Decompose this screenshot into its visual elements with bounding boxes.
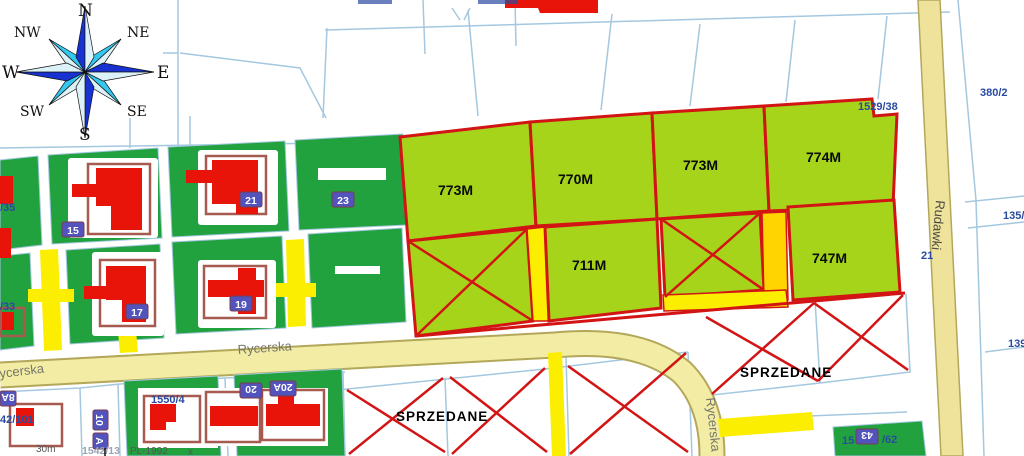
plate-23: 23 [337, 195, 349, 207]
x-mark: x [188, 447, 193, 456]
scale-label: 30m [36, 444, 55, 455]
compass-n: N [78, 1, 93, 21]
plot-green [308, 228, 406, 328]
compass-sw: SW [20, 104, 45, 120]
compass-nw: NW [14, 25, 41, 41]
sold-label-right: SPRZEDANE [740, 365, 832, 380]
parcel-35: /35 [0, 202, 15, 214]
plate-10a: A [93, 437, 105, 445]
map-canvas: N NE E SE S SW W NW 15 21 23 17 19 8A 10… [0, 0, 1024, 456]
plate-17: 17 [131, 307, 143, 319]
cadastral-map: N NE E SE S SW W NW 15 21 23 17 19 8A 10… [0, 0, 1024, 456]
parcel-33: /33 [0, 301, 15, 313]
parcel-1550-4: 1550/4 [151, 394, 186, 406]
parcel-139: 139 [1008, 338, 1024, 350]
plot-area-label: 773M [438, 182, 473, 198]
plate-15: 15 [67, 225, 79, 237]
plate-10: 10 [93, 414, 105, 426]
compass-w: W [2, 63, 20, 83]
plot-area-label: 770M [558, 171, 593, 187]
plate-19: 19 [235, 299, 247, 311]
clipped-label-fragment [478, 0, 518, 4]
sold-label-left: SPRZEDANE [396, 409, 488, 424]
plot-area-label: 711M [572, 257, 606, 273]
compass-s: S [79, 125, 91, 145]
plate-43: 43 [861, 429, 873, 441]
crs-label: PL-1992 [130, 446, 168, 456]
parcel-21: 21 [921, 250, 933, 262]
plot-area-label: 773M [683, 157, 718, 173]
compass-ne: NE [127, 25, 149, 41]
plate-20a: 20A [273, 381, 293, 393]
compass-se: SE [127, 104, 147, 120]
compass-e: E [157, 63, 169, 83]
parcel-43-suffix: /62 [882, 434, 897, 446]
plot-770m [530, 113, 657, 226]
parcel-135: 135/ [1003, 210, 1024, 222]
plate-8a: 8A [1, 391, 15, 403]
driveway-strip [718, 412, 814, 437]
parcel-380-2: 380/2 [980, 87, 1008, 99]
driveway-l-vertical [762, 212, 788, 301]
parcel-1529-38: 1529/38 [858, 101, 898, 113]
parcel-42-101: 42/101 [0, 414, 34, 426]
driveway-strip [548, 352, 566, 456]
clipped-label-fragment [358, 0, 392, 4]
plate-21: 21 [245, 195, 257, 207]
plot-green-23 [295, 134, 407, 230]
plate-20: 20 [245, 383, 257, 395]
parcel-43-prefix: 15 [842, 435, 854, 447]
plot-area-label: 774M [806, 149, 841, 165]
plot-area-label: 747M [812, 250, 847, 266]
parcel-1542-13: 1542/13 [82, 445, 120, 456]
building-top [505, 0, 598, 13]
